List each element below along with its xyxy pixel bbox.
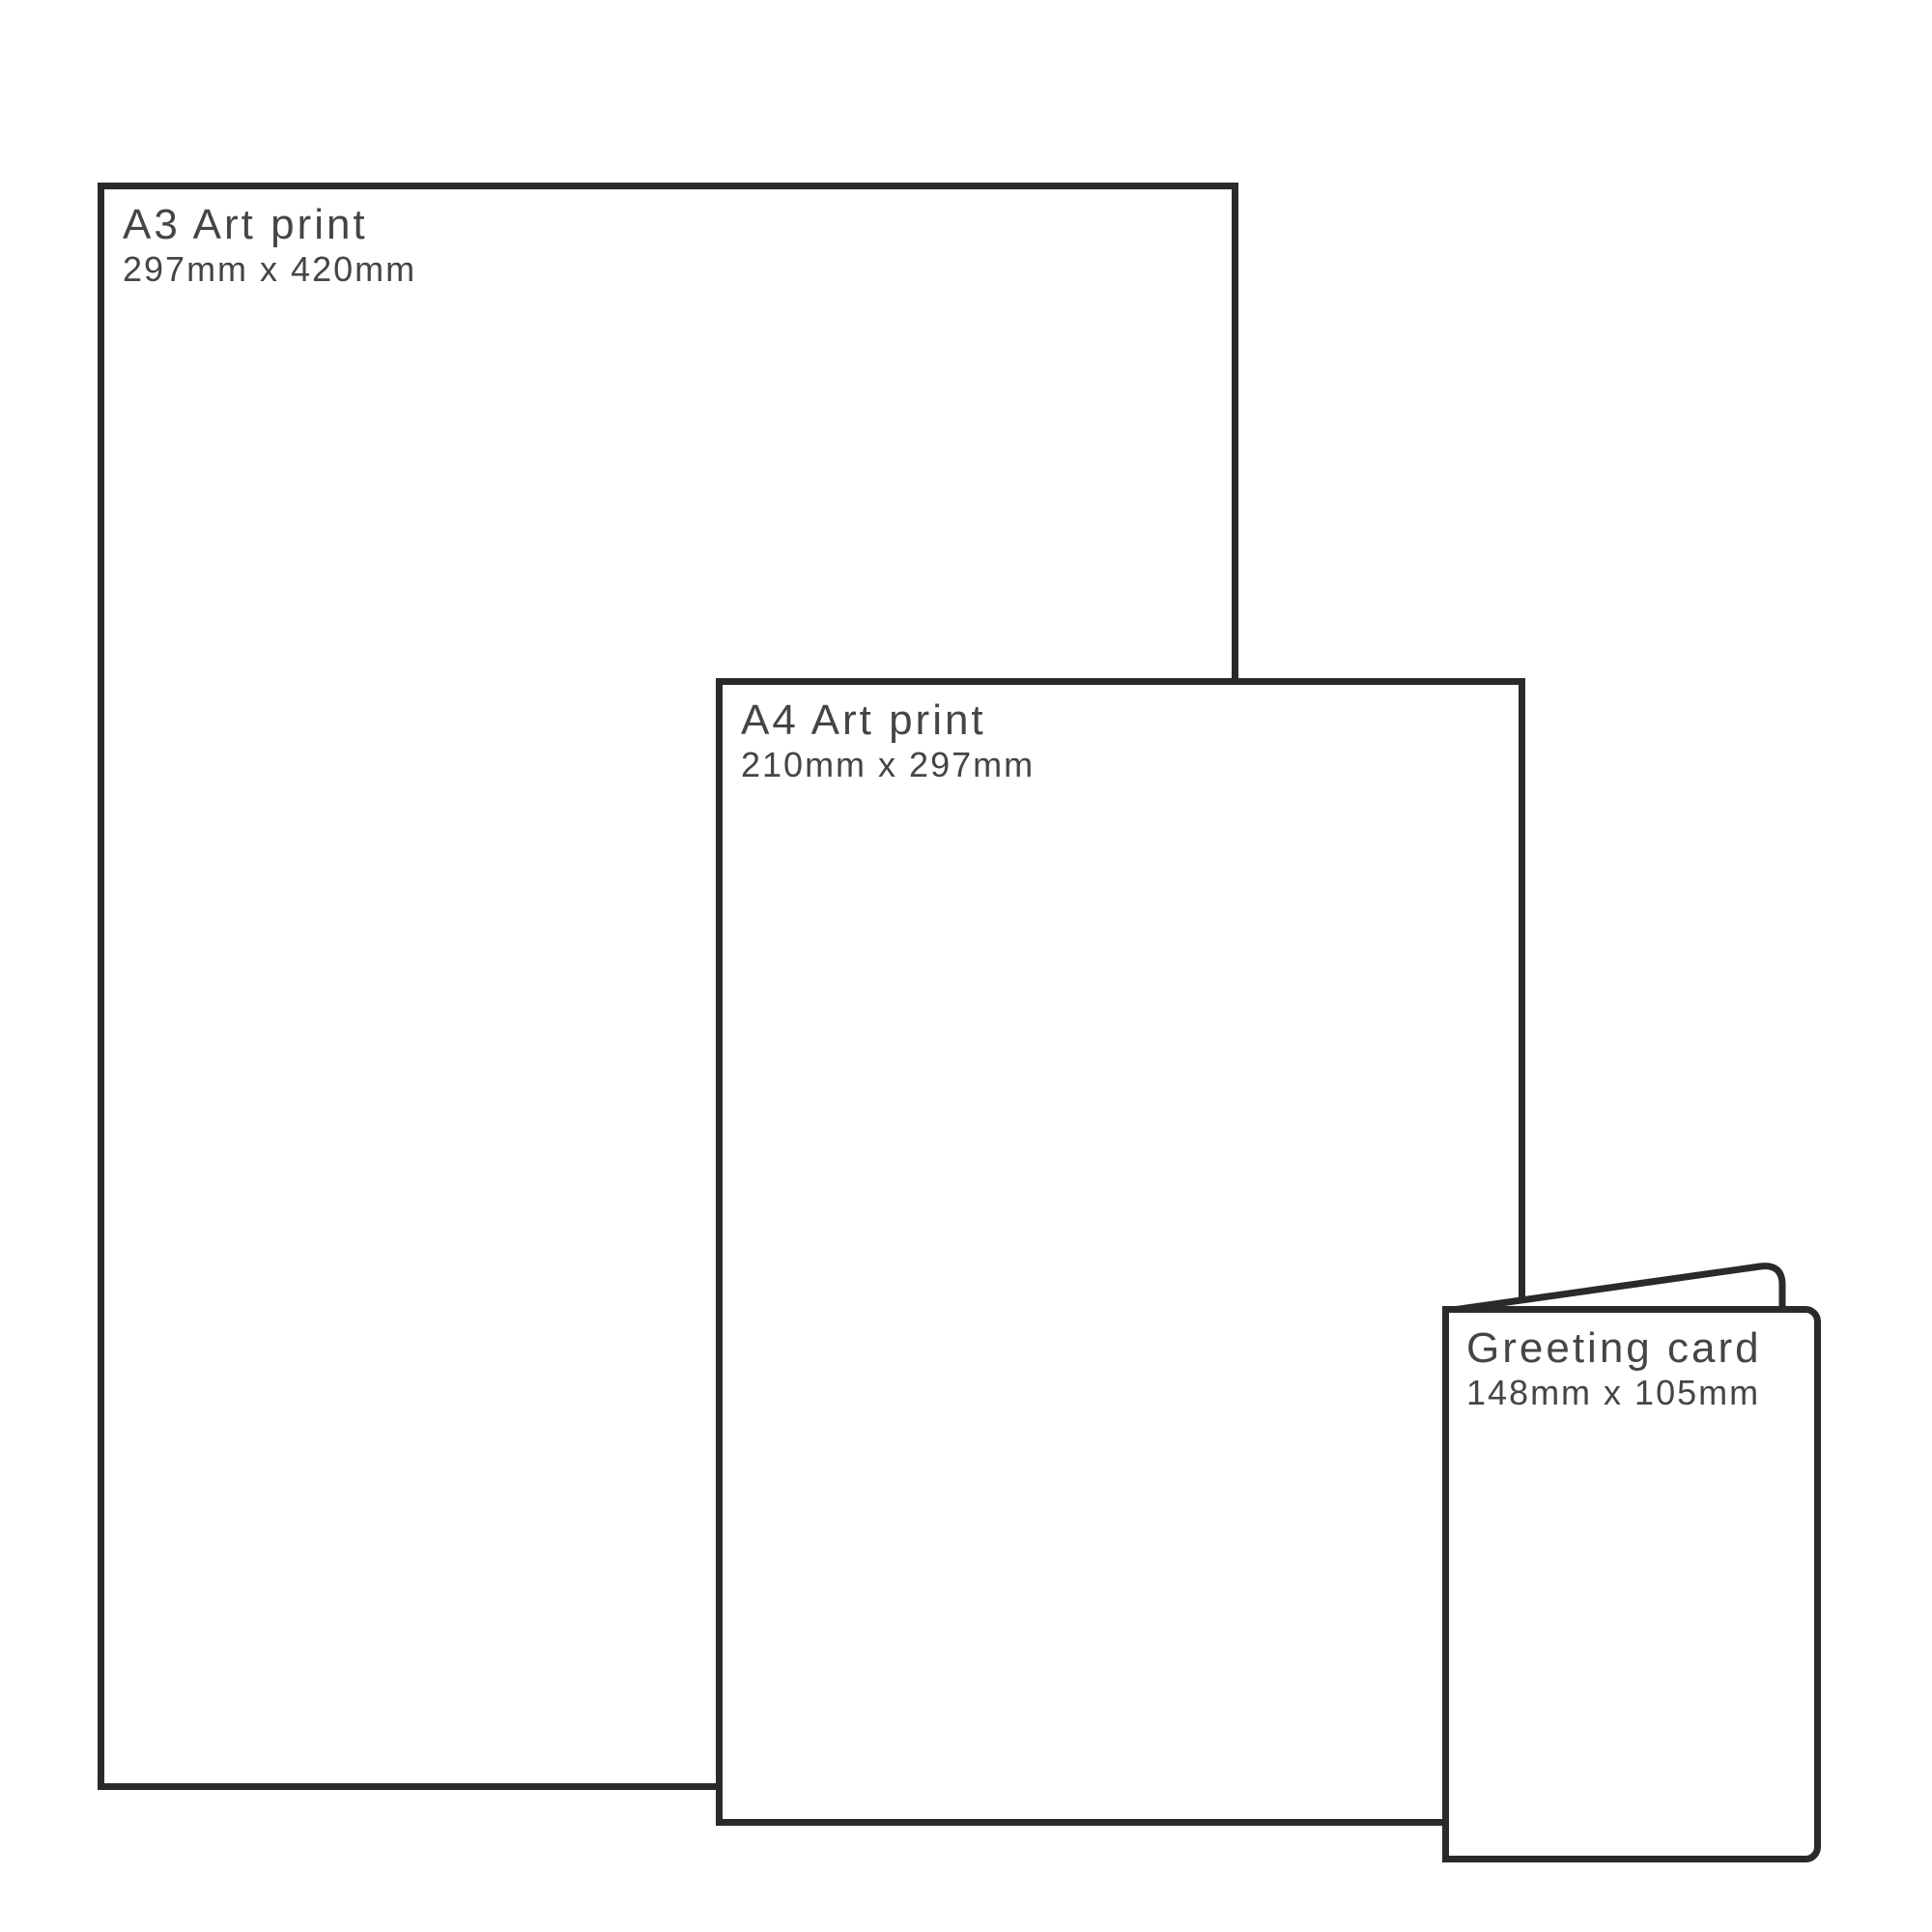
size-comparison-diagram: A3 Art print 297mm x 420mm A4 Art print …: [0, 0, 1932, 1932]
a4-print-label: A4 Art print 210mm x 297mm: [723, 685, 1519, 786]
a4-print-dimensions: 210mm x 297mm: [741, 744, 1509, 786]
greeting-card-dimensions: 148mm x 105mm: [1466, 1372, 1804, 1414]
a4-print-title: A4 Art print: [741, 697, 1509, 744]
greeting-card-outline: Greeting card 148mm x 105mm: [1442, 1306, 1821, 1862]
a3-print-title: A3 Art print: [123, 202, 1222, 248]
a3-print-label: A3 Art print 297mm x 420mm: [104, 189, 1232, 291]
greeting-card-title: Greeting card: [1466, 1325, 1804, 1372]
a3-print-dimensions: 297mm x 420mm: [123, 248, 1222, 291]
greeting-card-label: Greeting card 148mm x 105mm: [1449, 1313, 1814, 1414]
